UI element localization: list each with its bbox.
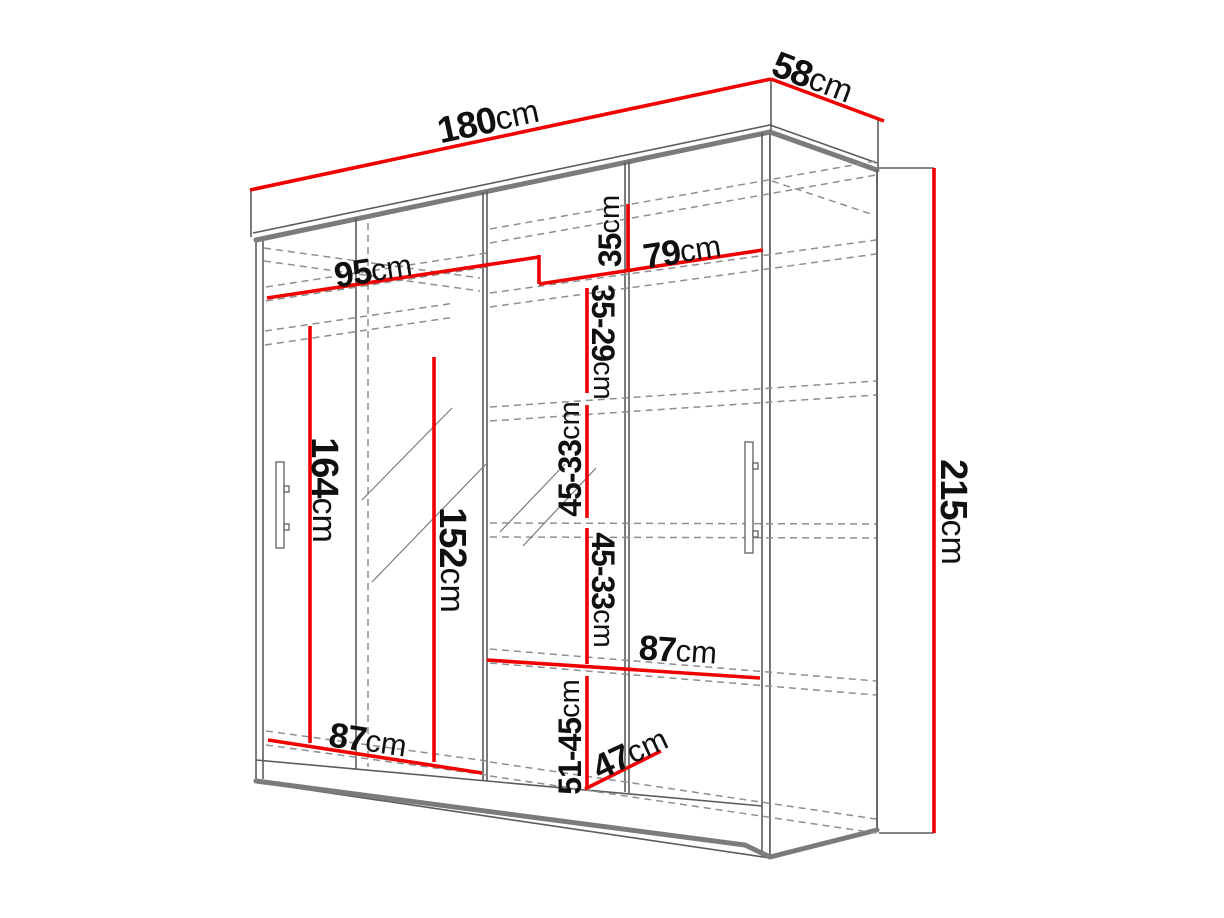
left-handle-mount-2 (284, 524, 289, 530)
right-handle-mount-1 (753, 463, 758, 469)
top-shelf-gap-label: 35cm (592, 195, 628, 267)
left-handle-mount-1 (284, 486, 289, 492)
middle-shelf-gap-label-2: 45-33cm (585, 532, 621, 648)
wardrobe-dimension-diagram-page: 180cm 58cm 215cm 95cm 79cm 35cm 35-29cm … (0, 0, 1224, 918)
center-hanging-height-label: 152cm (431, 507, 473, 613)
height-label: 215cm (932, 459, 974, 565)
width-label: 180cm (433, 89, 542, 150)
middle-shelf-width-label: 87cm (638, 628, 719, 672)
right-door-handle (745, 442, 753, 553)
right-handle-mount-2 (753, 531, 758, 537)
left-hanging-height-label: 164cm (303, 437, 345, 543)
right-side-face (770, 131, 877, 858)
wardrobe-dimension-diagram: 180cm 58cm 215cm 95cm 79cm 35cm 35-29cm … (0, 0, 1224, 918)
upper-shelf-gap-label: 35-29cm (585, 284, 621, 400)
depth-label: 58cm (767, 43, 859, 111)
middle-shelf-gap-label-1: 45-33cm (552, 401, 588, 517)
left-door-handle (276, 462, 284, 548)
lower-shelf-gap-label: 51-45cm (552, 679, 588, 795)
